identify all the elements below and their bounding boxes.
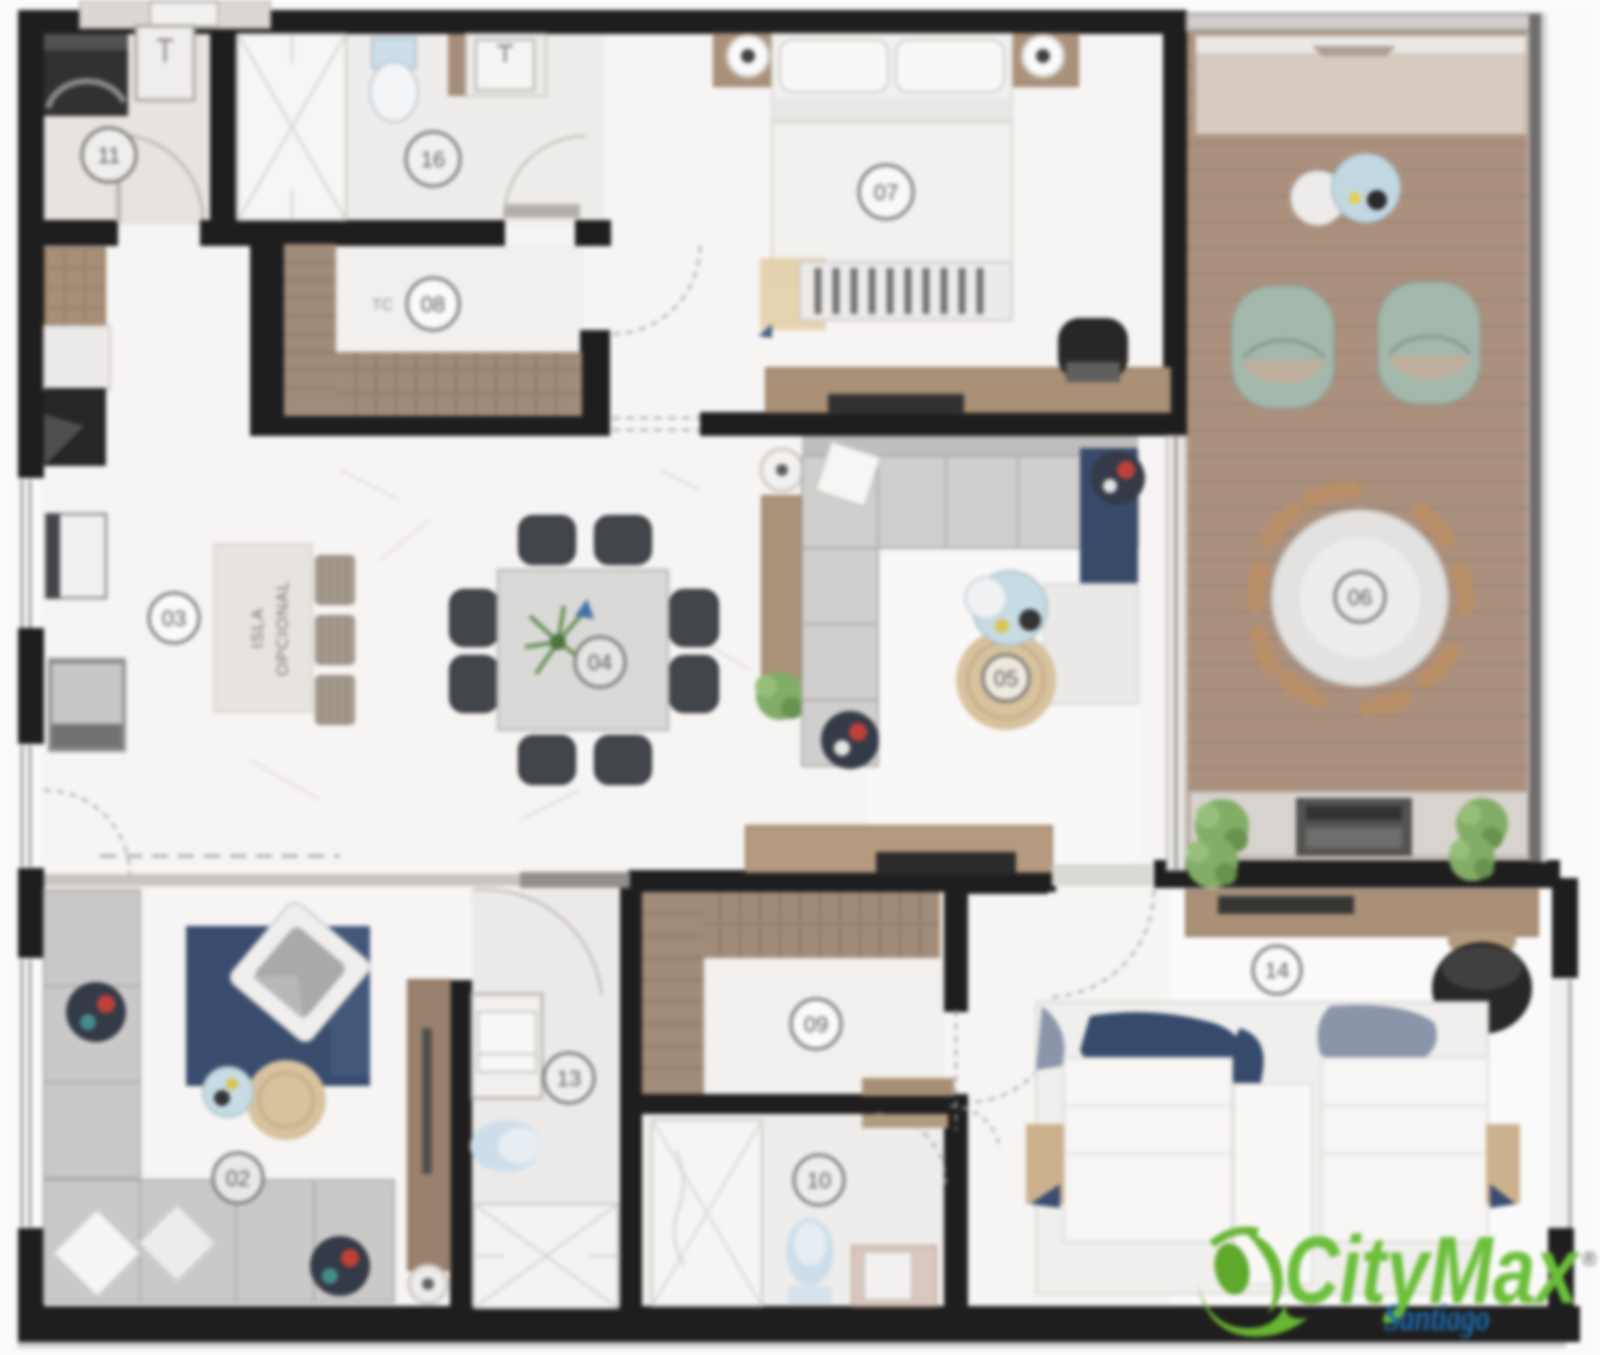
svg-text:Santiago: Santiago bbox=[1384, 1297, 1490, 1339]
svg-text:®: ® bbox=[1582, 1249, 1597, 1271]
